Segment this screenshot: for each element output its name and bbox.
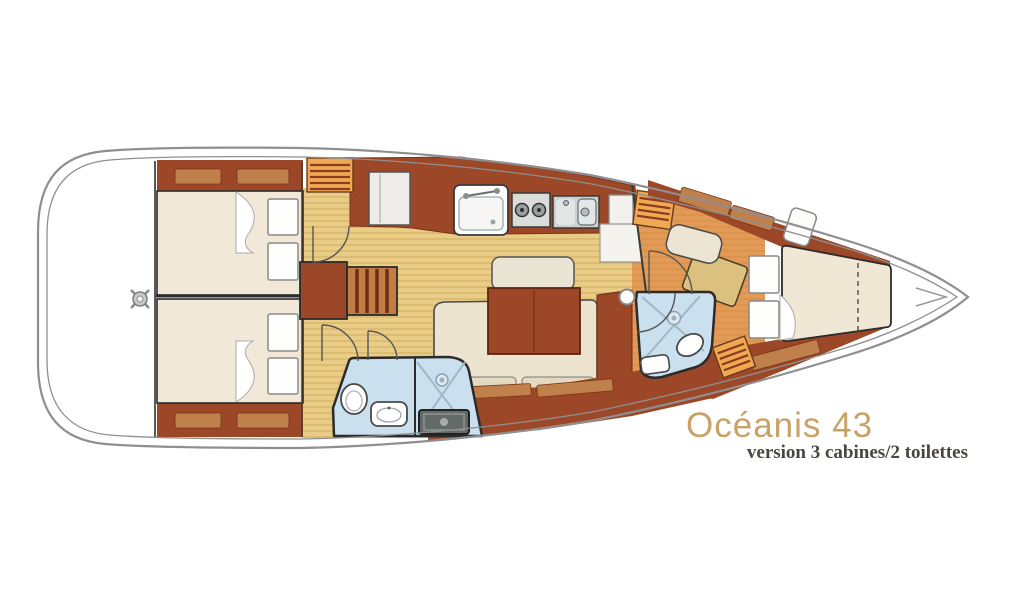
seat-cushion xyxy=(268,199,298,235)
aft-cabin-port xyxy=(157,160,303,295)
toilet xyxy=(341,384,367,414)
mast-post xyxy=(620,290,635,305)
plan-subtitle: version 3 cabines/2 toilettes xyxy=(610,442,968,464)
aft-cabin-starboard xyxy=(157,299,303,437)
seat-cushion xyxy=(749,301,779,338)
plan-title: Océanis 43 xyxy=(686,406,873,446)
stove xyxy=(512,193,550,227)
compass-rose-icon xyxy=(131,290,149,308)
seat-cushion xyxy=(268,358,298,394)
galley-sink xyxy=(454,185,508,235)
floor-plan-drawing xyxy=(0,0,1024,600)
locker xyxy=(175,413,221,428)
hanging-locker xyxy=(307,158,353,192)
seat-cushion xyxy=(749,256,779,293)
icebox xyxy=(609,195,633,226)
fridge-cabinet xyxy=(369,172,410,225)
washbasin xyxy=(640,354,670,375)
seat-cushion xyxy=(268,314,298,351)
salon-table-leaf xyxy=(492,257,574,290)
locker xyxy=(175,169,221,184)
washbasin xyxy=(371,402,407,426)
seat-cushion xyxy=(268,243,298,280)
companionway-steps xyxy=(300,262,397,319)
stowage-locker xyxy=(473,383,532,398)
double-sink xyxy=(553,196,599,228)
locker xyxy=(237,413,289,428)
counter-corner xyxy=(600,224,642,262)
boat-floor-plan: Océanis 43 version 3 cabines/2 toilettes xyxy=(0,0,1024,600)
locker xyxy=(237,169,289,184)
aft-head xyxy=(333,357,482,436)
